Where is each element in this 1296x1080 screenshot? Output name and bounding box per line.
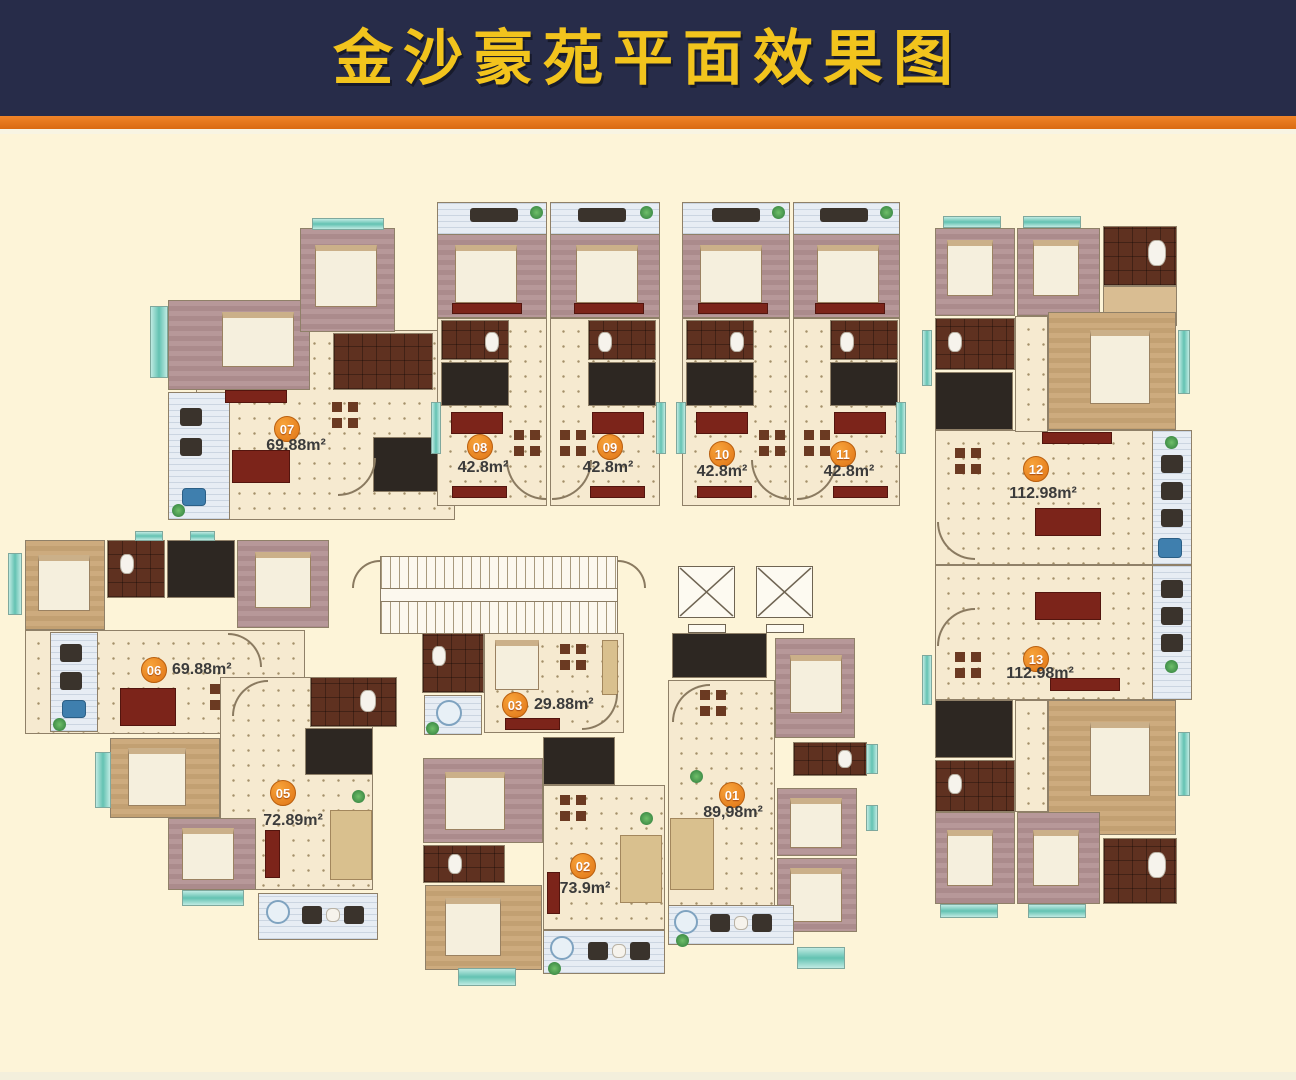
unit03-bathroom	[422, 633, 484, 693]
plant-icon	[690, 770, 703, 783]
unit13-hall	[1015, 700, 1048, 812]
washing-machine	[436, 700, 462, 726]
bed	[255, 552, 311, 608]
bed	[495, 640, 539, 690]
sofa	[330, 810, 372, 880]
unit06-kitchen	[167, 540, 235, 598]
sofa	[505, 718, 560, 730]
bed	[445, 898, 501, 956]
bed	[1090, 722, 1150, 796]
bed	[1033, 240, 1079, 296]
bed	[700, 245, 762, 303]
toilet	[948, 774, 962, 794]
unit09-window	[656, 402, 666, 454]
bed	[445, 772, 505, 830]
balcony-bench	[820, 208, 868, 222]
unit01-kitchen	[672, 633, 767, 678]
balcony-chair	[1161, 634, 1183, 652]
toilet	[730, 332, 744, 352]
unit06-badge: 06	[141, 657, 167, 683]
sofa	[620, 835, 662, 903]
unit05-badge: 05	[270, 780, 296, 806]
sofa	[834, 412, 886, 434]
toilet	[120, 554, 134, 574]
unit05-bathroom	[310, 677, 397, 727]
balcony-table	[326, 908, 340, 922]
toilet	[1148, 852, 1166, 878]
balcony-chair	[710, 914, 730, 932]
unit01-window-right1	[866, 744, 878, 774]
balcony-bench	[578, 208, 626, 222]
unit12-bathroom-2	[935, 318, 1015, 370]
unit13-area: 112.98m²	[992, 665, 1088, 683]
washing-machine	[674, 910, 698, 934]
unit03-kitchen	[543, 737, 615, 785]
plant-icon	[640, 812, 653, 825]
wash-basin	[182, 488, 206, 506]
balcony-bench	[470, 208, 518, 222]
plant-icon	[1165, 660, 1178, 673]
unit12-hall	[1015, 316, 1048, 432]
bed	[1033, 830, 1079, 886]
unit10-kitchen	[686, 362, 754, 406]
bed	[790, 655, 842, 713]
elevator-shaft	[756, 566, 813, 618]
bed	[790, 868, 842, 922]
tv-cabinet	[265, 830, 280, 878]
balcony-chair	[344, 906, 364, 924]
plant-icon	[352, 790, 365, 803]
bed	[128, 748, 186, 806]
plant-icon	[772, 206, 785, 219]
balcony-chair	[1161, 580, 1183, 598]
unit05-window-left	[95, 752, 111, 808]
unit09-badge: 09	[597, 434, 623, 460]
sofa	[451, 412, 503, 434]
elevator-shaft	[678, 566, 735, 618]
dining-set	[759, 430, 769, 440]
unit03-badge: 03	[502, 692, 528, 718]
unit01-bathroom	[793, 742, 867, 776]
unit12-kitchen	[935, 372, 1013, 430]
dining-set	[955, 652, 965, 662]
unit03-area: 29.88m²	[534, 696, 619, 714]
unit12-window-left	[922, 330, 932, 386]
toilet	[360, 690, 376, 712]
bed	[1090, 330, 1150, 404]
sofa	[120, 688, 176, 726]
dresser	[698, 303, 768, 314]
balcony-chair	[752, 914, 772, 932]
unit12-badge: 12	[1023, 456, 1049, 482]
balcony-chair	[630, 942, 650, 960]
dining-set	[210, 684, 220, 694]
sofa	[670, 818, 714, 890]
bed	[576, 245, 638, 303]
elevator-x-icon	[679, 567, 734, 617]
bed	[455, 245, 517, 303]
unit07-bathroom	[333, 333, 433, 390]
tv-cabinet	[225, 390, 287, 403]
plant-icon	[640, 206, 653, 219]
unit13-bathroom-2	[935, 760, 1015, 812]
unit13-window-left	[922, 655, 932, 705]
balcony-chair	[60, 672, 82, 690]
dining-set	[955, 448, 965, 458]
unit08-window	[431, 402, 441, 454]
unit07-window-left	[150, 306, 168, 378]
balcony-bench	[712, 208, 760, 222]
toilet	[948, 332, 962, 352]
unit13-window-right	[1178, 732, 1190, 796]
unit02-bathroom	[423, 845, 505, 883]
unit08-kitchen	[441, 362, 509, 406]
unit06-bathroom	[107, 540, 165, 598]
unit13-window-bottom2	[1028, 904, 1086, 918]
balcony-chair	[180, 438, 202, 456]
unit06-window-top2	[190, 531, 215, 541]
balcony-chair	[1161, 455, 1183, 473]
balcony-table	[734, 916, 748, 930]
shoe-cabinet	[697, 486, 752, 498]
plant-icon	[548, 962, 561, 975]
unit13-window-bottom1	[940, 904, 998, 918]
elevator-door	[688, 624, 726, 633]
unit08-area: 42.8m²	[443, 459, 523, 477]
divider-stripe	[0, 129, 1296, 134]
wash-basin	[62, 700, 86, 718]
plant-icon	[426, 722, 439, 735]
washing-machine	[550, 936, 574, 960]
toilet	[432, 646, 446, 666]
toilet	[840, 332, 854, 352]
accent-stripe	[0, 116, 1296, 129]
plant-icon	[53, 718, 66, 731]
bed	[38, 555, 90, 611]
tv-cabinet	[1042, 432, 1112, 444]
unit12-window-top1	[943, 216, 1001, 228]
unit13-kitchen	[935, 700, 1013, 758]
footer-band	[0, 1072, 1296, 1080]
unit05-kitchen	[305, 728, 373, 775]
toilet	[448, 854, 462, 874]
plant-icon	[676, 934, 689, 947]
dining-set	[332, 402, 342, 412]
unit02-badge: 02	[570, 853, 596, 879]
plant-icon	[880, 206, 893, 219]
shoe-cabinet	[590, 486, 645, 498]
toilet	[598, 332, 612, 352]
unit10-window	[676, 402, 686, 454]
wardrobe	[602, 640, 618, 695]
bed	[817, 245, 879, 303]
page-title: 金沙豪苑平面效果图	[0, 0, 1296, 116]
plant-icon	[172, 504, 185, 517]
unit06-window-left	[8, 553, 22, 615]
shoe-cabinet	[833, 486, 888, 498]
unit12-window-top2	[1023, 216, 1081, 228]
unit08-badge: 08	[467, 434, 493, 460]
dresser	[815, 303, 885, 314]
toilet	[838, 750, 852, 768]
balcony-chair	[1161, 607, 1183, 625]
sofa	[696, 412, 748, 434]
unit05-area: 72.89m²	[253, 812, 333, 830]
dining-set	[514, 430, 524, 440]
balcony-table	[612, 944, 626, 958]
sofa	[1035, 508, 1101, 536]
unit02-area: 73.9m²	[545, 880, 625, 898]
balcony-chair	[60, 644, 82, 662]
elevator-x-icon	[757, 567, 812, 617]
sofa	[1035, 592, 1101, 620]
bed	[790, 798, 842, 848]
plant-icon	[1165, 436, 1178, 449]
unit05-window-bottom	[182, 890, 244, 906]
unit07-window-top	[312, 218, 384, 230]
dining-set	[560, 644, 570, 654]
unit06-window-top1	[135, 531, 163, 541]
dining-set	[560, 795, 570, 805]
bed	[182, 828, 234, 880]
unit01-area: 89,98m²	[693, 804, 773, 822]
toilet	[485, 332, 499, 352]
unit09-area: 42.8m²	[568, 459, 648, 477]
staircase-landing	[381, 588, 617, 602]
unit12-window-right	[1178, 330, 1190, 394]
unit11-area: 42.8m²	[809, 463, 889, 481]
unit02-window-bottom	[458, 968, 516, 986]
shoe-cabinet	[452, 486, 507, 498]
dining-set	[804, 430, 814, 440]
unit11-window	[896, 402, 906, 454]
bed	[222, 312, 294, 367]
bed	[947, 240, 993, 296]
door-swing	[352, 560, 380, 588]
unit12-area: 112.98m²	[995, 485, 1091, 503]
unit13-bathroom-1	[1103, 838, 1177, 904]
balcony-chair	[302, 906, 322, 924]
unit07-area: 69.88m²	[256, 437, 336, 455]
balcony-chair	[1161, 482, 1183, 500]
unit01-window-bottom	[797, 947, 845, 969]
bed	[315, 245, 377, 307]
dresser	[452, 303, 522, 314]
sofa	[592, 412, 644, 434]
dresser	[574, 303, 644, 314]
elevator-door	[766, 624, 804, 633]
floor-plan-poster: 金沙豪苑平面效果图 07 69.88m² 08 42.8m²	[0, 0, 1296, 1080]
washing-machine	[266, 900, 290, 924]
wash-basin	[1158, 538, 1182, 558]
dining-set	[560, 430, 570, 440]
plant-icon	[530, 206, 543, 219]
door-swing	[618, 560, 646, 588]
unit10-area: 42.8m²	[682, 463, 762, 481]
toilet	[1148, 240, 1166, 266]
unit09-kitchen	[588, 362, 656, 406]
bed	[947, 830, 993, 886]
balcony-chair	[180, 408, 202, 426]
unit11-kitchen	[830, 362, 898, 406]
balcony-chair	[1161, 509, 1183, 527]
balcony-chair	[588, 942, 608, 960]
unit01-window-right2	[866, 805, 878, 831]
